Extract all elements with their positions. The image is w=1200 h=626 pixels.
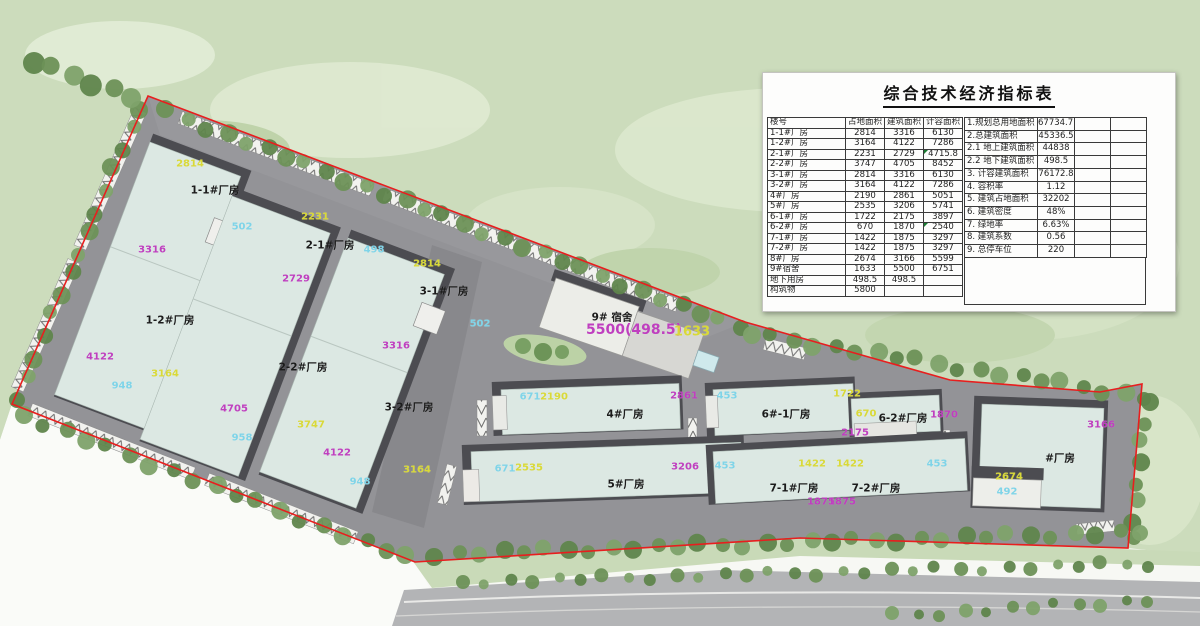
area-value-cell: 5800: [846, 286, 885, 297]
building-row-label: 构筑物: [768, 286, 846, 297]
table-row: 构筑物5800: [768, 286, 963, 297]
indicator-value-cell: [1075, 168, 1111, 181]
tree-icon: [688, 534, 706, 552]
area-value-cell: [885, 286, 924, 297]
building-row-label: 6-1#厂房: [768, 212, 846, 223]
area-value-cell: [924, 275, 963, 286]
indicator-value-cell: [1111, 181, 1147, 194]
table-title: 综合技术经济指标表: [763, 80, 1175, 108]
table-row: 8. 建筑系数0.56: [965, 232, 1147, 245]
tree-icon: [575, 574, 587, 586]
tree-icon: [197, 122, 213, 138]
table-row: 5#厂房253532065741: [768, 202, 963, 213]
tree-icon: [762, 566, 772, 576]
indicator-value-cell: [1075, 219, 1111, 232]
tree-icon: [517, 545, 531, 559]
tree-icon: [1131, 432, 1147, 448]
area-value-cell: 2175: [885, 212, 924, 223]
tree-icon: [594, 568, 608, 582]
tree-icon: [35, 419, 49, 433]
table-row: 2-2#厂房374747058452: [768, 160, 963, 171]
tree-icon: [453, 545, 467, 559]
table-row: 9. 总停车位220: [965, 245, 1147, 258]
area-value-cell: 3166: [885, 254, 924, 265]
tree-icon: [1007, 601, 1019, 613]
building-6-2: [848, 389, 944, 438]
tree-icon: [1073, 561, 1085, 573]
indicator-value-cell: [1111, 206, 1147, 219]
indicator-value-cell: [1075, 194, 1111, 207]
tree-icon: [915, 531, 929, 545]
building-row-label: 6-2#厂房: [768, 223, 846, 234]
area-value-cell: 670: [846, 223, 885, 234]
green-corner-flag: [924, 223, 928, 227]
tree-icon: [823, 534, 841, 552]
table-row: 2.总建筑面积45336.5: [965, 130, 1147, 143]
tree-icon: [555, 254, 571, 270]
tree-icon: [1138, 417, 1152, 431]
table-row: 2.2 地下建筑面积498.5: [965, 156, 1147, 169]
tree-icon: [399, 190, 417, 208]
tree-icon: [1094, 385, 1110, 401]
tree-icon: [928, 561, 940, 573]
indicator-value-cell: [1075, 206, 1111, 219]
area-value-cell: 3297: [924, 244, 963, 255]
tree-icon: [24, 351, 42, 369]
indicator-value-cell: [1111, 232, 1147, 245]
area-value-cell: 3297: [924, 233, 963, 244]
tree-icon: [858, 567, 870, 579]
tree-icon: [1074, 598, 1086, 610]
tree-icon: [805, 532, 821, 548]
area-value-cell: 3206: [885, 202, 924, 213]
table-row: 地下用房498.5498.5: [768, 275, 963, 286]
tree-icon: [560, 541, 578, 559]
area-value-cell: 498.5: [885, 275, 924, 286]
table-row: 5. 建筑占地面积32202: [965, 194, 1147, 207]
area-value-cell: 2729: [885, 149, 924, 160]
tree-icon: [596, 269, 610, 283]
tree-icon: [182, 112, 196, 126]
building-row-label: 3-2#厂房: [768, 181, 846, 192]
table-row: 7. 绿地率6.63%: [965, 219, 1147, 232]
tree-icon: [1122, 596, 1132, 606]
table-row: 1.规划总用地面积67734.71: [965, 118, 1147, 131]
tree-icon: [525, 575, 539, 589]
tree-icon: [885, 562, 899, 576]
tree-icon: [1141, 393, 1159, 411]
tree-icon: [716, 538, 730, 552]
indicator-value-cell: [1111, 156, 1147, 169]
tree-icon: [239, 137, 253, 151]
table-row: 8#厂房267431665599: [768, 254, 963, 265]
tree-icon: [1053, 560, 1063, 570]
indicator-value-cell: [1111, 118, 1147, 131]
area-value-cell: 2814: [846, 170, 885, 181]
tree-icon: [471, 547, 487, 563]
column-header: 建筑面积: [885, 118, 924, 129]
building-row-label: 1-1#厂房: [768, 128, 846, 139]
summary-table: 1.规划总用地面积67734.712.总建筑面积45336.52.1 地上建筑面…: [964, 117, 1147, 258]
tree-icon: [1086, 526, 1104, 544]
table-row: 4#厂房219028615051: [768, 191, 963, 202]
site-plan-rendering: 28141-1#厂房33165021-2#厂房4122316494822312-…: [0, 0, 1200, 626]
indicator-value-cell: 44838: [1038, 143, 1075, 156]
summary-table-wrap: 1.规划总用地面积67734.712.总建筑面积45336.52.1 地上建筑面…: [964, 117, 1146, 305]
tree-icon: [1129, 478, 1143, 492]
tree-icon: [977, 566, 987, 576]
tree-icon: [1093, 599, 1107, 613]
area-value-cell: 3747: [846, 160, 885, 171]
building-row-label: 1-2#厂房: [768, 139, 846, 150]
building-row-label: 7-2#厂房: [768, 244, 846, 255]
table-row: 3-2#厂房316441227286: [768, 181, 963, 192]
building-5: [462, 435, 746, 505]
tree-icon: [316, 517, 332, 533]
tree-icon: [42, 57, 60, 75]
area-value-cell: 4122: [885, 139, 924, 150]
area-value-cell: 7286: [924, 181, 963, 192]
tree-icon: [513, 239, 531, 257]
indicator-label: 2.2 地下建筑面积: [965, 156, 1038, 169]
tree-icon: [887, 534, 905, 552]
indicator-value-cell: 6.63%: [1038, 219, 1075, 232]
area-value-cell: 3316: [885, 170, 924, 181]
tree-icon: [80, 74, 102, 96]
building-row-label: 4#厂房: [768, 191, 846, 202]
building-8: [970, 396, 1108, 513]
indicator-label: 2.1 地上建筑面积: [965, 143, 1038, 156]
area-value-cell: 2231: [846, 149, 885, 160]
tree-icon: [979, 531, 993, 545]
tree-icon: [809, 569, 823, 583]
area-value-cell: 2674: [846, 254, 885, 265]
tree-icon: [652, 538, 666, 552]
area-value-cell: 498.5: [846, 275, 885, 286]
area-value-cell: 2814: [846, 128, 885, 139]
indicator-value-cell: [1111, 245, 1147, 258]
tree-icon: [229, 489, 243, 503]
tree-icon: [743, 326, 761, 344]
indicator-label: 3. 计容建筑面积: [965, 168, 1038, 181]
tree-icon: [1141, 596, 1153, 608]
indicator-value-cell: 498.5: [1038, 156, 1075, 169]
column-header: 楼号: [768, 118, 846, 129]
indicator-value-cell: 45336.5: [1038, 130, 1075, 143]
indicator-value-cell: [1075, 130, 1111, 143]
table-row: 3. 计容建筑面积76172.8: [965, 168, 1147, 181]
tree-icon: [671, 568, 685, 582]
building-row-label: 7-1#厂房: [768, 233, 846, 244]
area-value-cell: 6751: [924, 265, 963, 276]
tree-icon: [780, 538, 794, 552]
indicator-value-cell: 0.56: [1038, 232, 1075, 245]
area-value-cell: 1722: [846, 212, 885, 223]
area-value-cell: 1422: [846, 244, 885, 255]
table-row: 4. 容积率1.12: [965, 181, 1147, 194]
indicator-value-cell: 1.12: [1038, 181, 1075, 194]
indicator-value-cell: [1111, 168, 1147, 181]
tree-icon: [425, 548, 443, 566]
tree-icon: [624, 541, 642, 559]
area-value-cell: 1875: [885, 244, 924, 255]
area-value-cell: 1875: [885, 233, 924, 244]
indicator-value-cell: [1075, 245, 1111, 258]
tree-icon: [844, 531, 858, 545]
area-value-cell: 3897: [924, 212, 963, 223]
table-row: 7-2#厂房142218753297: [768, 244, 963, 255]
area-value-cell: 7286: [924, 139, 963, 150]
tree-icon: [555, 573, 565, 583]
area-value-cell: 3316: [885, 128, 924, 139]
tree-icon: [121, 88, 141, 108]
tree-icon: [1077, 380, 1091, 394]
building-row-label: 地下用房: [768, 275, 846, 286]
area-value-cell: 4705: [885, 160, 924, 171]
table-row: 1-1#厂房281433166130: [768, 128, 963, 139]
building-row-label: 8#厂房: [768, 254, 846, 265]
table-row: 2-1#厂房223127294715.8: [768, 149, 963, 160]
indicator-label: 5. 建筑占地面积: [965, 194, 1038, 207]
indicator-value-cell: 67734.71: [1038, 118, 1075, 131]
table-row: 6-1#厂房172221753897: [768, 212, 963, 223]
tree-icon: [81, 222, 99, 240]
indicator-value-cell: 220: [1038, 245, 1075, 258]
tree-icon: [914, 610, 924, 620]
area-value-cell: 2540: [924, 223, 963, 234]
tree-icon: [930, 355, 948, 373]
tree-icon: [950, 363, 964, 377]
tree-icon: [990, 367, 1008, 385]
indicator-value-cell: [1075, 156, 1111, 169]
building-row-label: 2-1#厂房: [768, 149, 846, 160]
tree-icon: [997, 525, 1013, 541]
tree-icon: [908, 566, 918, 576]
tree-icon: [1132, 525, 1148, 541]
tree-icon: [981, 607, 991, 617]
tree-icon: [105, 79, 123, 97]
indicator-value-cell: 32202: [1038, 194, 1075, 207]
tree-icon: [653, 293, 667, 307]
tree-icon: [1093, 555, 1107, 569]
area-value-cell: 2535: [846, 202, 885, 213]
indicator-label: 2.总建筑面积: [965, 130, 1038, 143]
area-value-cell: 3164: [846, 181, 885, 192]
tree-icon: [1043, 531, 1057, 545]
tree-icon: [475, 227, 489, 241]
area-value-cell: 5051: [924, 191, 963, 202]
tree-icon: [1048, 598, 1058, 608]
indicator-label: 9. 总停车位: [965, 245, 1038, 258]
building-row-label: 3-1#厂房: [768, 170, 846, 181]
tree-icon: [885, 606, 899, 620]
indicator-value-cell: [1075, 143, 1111, 156]
area-value-cell: 1422: [846, 233, 885, 244]
table-row: 7-1#厂房142218753297: [768, 233, 963, 244]
tree-icon: [1023, 562, 1037, 576]
tree-icon: [720, 567, 732, 579]
tree-icon: [271, 502, 289, 520]
tree-icon: [933, 532, 949, 548]
area-value-cell: 4715.8: [924, 149, 963, 160]
area-value-cell: 4122: [885, 181, 924, 192]
area-value-cell: 5500: [885, 265, 924, 276]
tree-icon: [612, 278, 628, 294]
green-corner-flag: [924, 150, 928, 154]
indicator-label: 7. 绿地率: [965, 219, 1038, 232]
tree-icon: [376, 188, 392, 204]
area-value-cell: 2190: [846, 191, 885, 202]
tree-icon: [505, 574, 517, 586]
column-header: 占地面积: [846, 118, 885, 129]
area-value-cell: 2861: [885, 191, 924, 202]
area-value-cell: 1633: [846, 265, 885, 276]
tree-icon: [456, 575, 470, 589]
table-row: 2.1 地上建筑面积44838: [965, 143, 1147, 156]
indicator-value-cell: 76172.8: [1038, 168, 1075, 181]
tree-icon: [1142, 561, 1154, 573]
indicator-value-cell: [1111, 219, 1147, 232]
indicator-label: 6. 建筑密度: [965, 206, 1038, 219]
tree-icon: [740, 569, 754, 583]
tree-icon: [53, 286, 71, 304]
tree-icon: [1068, 525, 1084, 541]
tree-icon: [456, 215, 474, 233]
tree-icon: [974, 362, 990, 378]
tree-icon: [1004, 561, 1016, 573]
indicator-table-panel: 综合技术经济指标表 楼号占地面积建筑面积计容面积 1-1#厂房281433166…: [762, 72, 1176, 312]
tree-icon: [1114, 524, 1128, 538]
tree-icon: [115, 142, 131, 158]
indicator-label: 1.规划总用地面积: [965, 118, 1038, 131]
column-header: 计容面积: [924, 118, 963, 129]
tree-icon: [958, 527, 976, 545]
tree-icon: [907, 350, 923, 366]
tree-icon: [77, 432, 95, 450]
tree-icon: [23, 52, 45, 74]
tree-icon: [479, 579, 489, 589]
indicator-value-cell: [1075, 232, 1111, 245]
indicator-value-cell: [1111, 130, 1147, 143]
area-value-cell: 1870: [885, 223, 924, 234]
area-value-cell: 5741: [924, 202, 963, 213]
tree-icon: [789, 567, 801, 579]
area-value-cell: 6130: [924, 170, 963, 181]
tree-icon: [624, 573, 634, 583]
indicator-label: 4. 容积率: [965, 181, 1038, 194]
tree-icon: [1017, 368, 1031, 382]
building-4: [492, 375, 684, 436]
area-value-cell: 5599: [924, 254, 963, 265]
tree-icon: [759, 534, 777, 552]
table-row: 6. 建筑密度48%: [965, 206, 1147, 219]
summary-table-empty-cell: [964, 258, 1146, 305]
table-title-text: 综合技术经济指标表: [883, 80, 1054, 108]
indicator-value-cell: [1111, 143, 1147, 156]
tree-icon: [417, 203, 431, 217]
area-value-cell: [924, 286, 963, 297]
tree-icon: [954, 562, 968, 576]
building-row-label: 9#宿舍: [768, 265, 846, 276]
tree-icon: [959, 604, 973, 618]
indicator-value-cell: [1075, 118, 1111, 131]
tree-icon: [606, 540, 622, 556]
building-row-label: 2-2#厂房: [768, 160, 846, 171]
tree-icon: [1122, 560, 1132, 570]
table-row: 9#宿舍163355006751: [768, 265, 963, 276]
tree-icon: [839, 566, 849, 576]
indicator-value-cell: [1111, 194, 1147, 207]
indicator-value-cell: 48%: [1038, 206, 1075, 219]
tree-icon: [644, 574, 656, 586]
tree-icon: [1022, 526, 1040, 544]
area-value-cell: 3164: [846, 139, 885, 150]
building-row-label: 5#厂房: [768, 202, 846, 213]
tree-icon: [933, 610, 945, 622]
tree-icon: [670, 539, 686, 555]
tree-icon: [1026, 601, 1040, 615]
table-row: 1-2#厂房316441227286: [768, 139, 963, 150]
tree-icon: [693, 573, 703, 583]
table-row: 6-2#厂房67018702540: [768, 223, 963, 234]
indicator-value-cell: [1075, 181, 1111, 194]
building-6-1: [705, 376, 857, 436]
table-row: 3-1#厂房281433166130: [768, 170, 963, 181]
area-value-cell: 6130: [924, 128, 963, 139]
area-value-cell: 8452: [924, 160, 963, 171]
building-area-table: 楼号占地面积建筑面积计容面积 1-1#厂房2814331661301-2#厂房3…: [767, 117, 963, 297]
tree-icon: [86, 207, 102, 223]
tree-icon: [335, 173, 353, 191]
indicator-label: 8. 建筑系数: [965, 232, 1038, 245]
tree-icon: [1050, 372, 1068, 390]
